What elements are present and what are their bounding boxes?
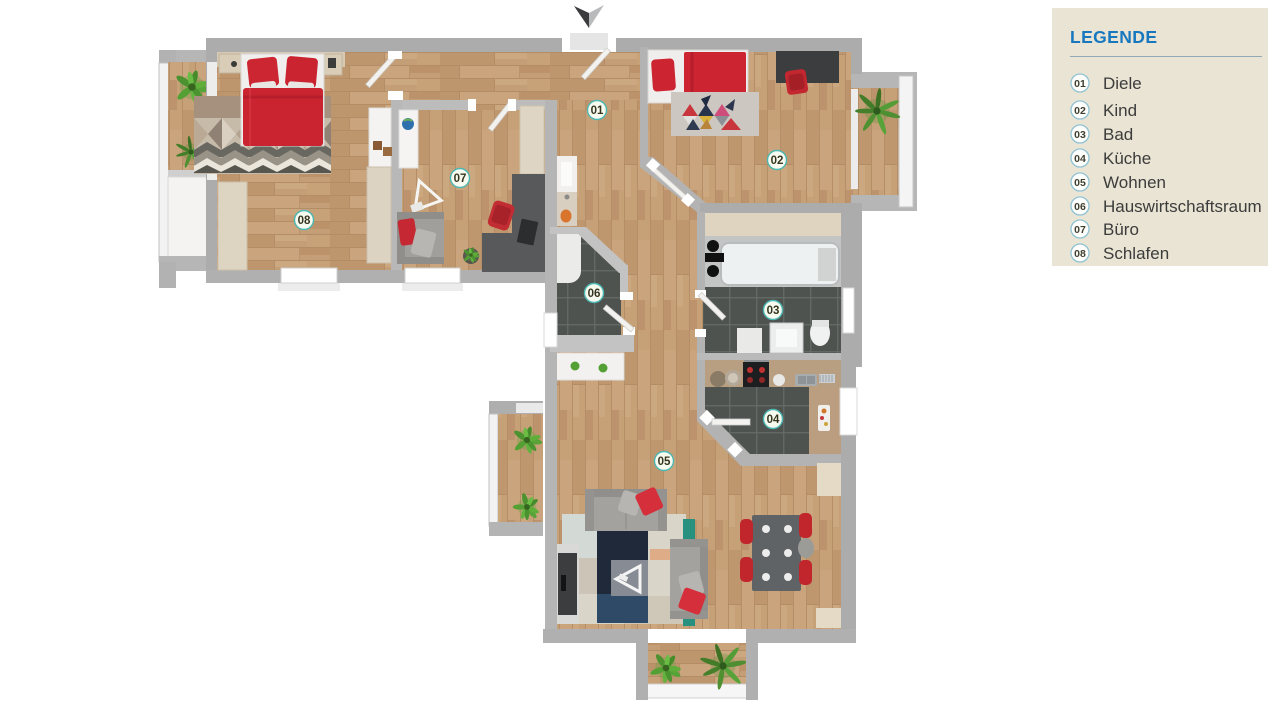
svg-text:Schlafen: Schlafen — [1103, 244, 1169, 263]
svg-text:04: 04 — [767, 414, 780, 426]
svg-text:02: 02 — [771, 155, 784, 167]
svg-text:02: 02 — [1074, 105, 1086, 117]
svg-text:Küche: Küche — [1103, 149, 1151, 168]
svg-text:05: 05 — [1074, 177, 1086, 189]
svg-text:03: 03 — [1074, 129, 1086, 141]
svg-text:Büro: Büro — [1103, 220, 1139, 239]
svg-text:LEGENDE: LEGENDE — [1070, 27, 1157, 47]
svg-text:06: 06 — [1074, 201, 1086, 213]
svg-text:03: 03 — [767, 305, 780, 317]
svg-text:07: 07 — [1074, 224, 1086, 236]
svg-text:Wohnen: Wohnen — [1103, 173, 1166, 192]
svg-text:Diele: Diele — [1103, 74, 1142, 93]
svg-text:04: 04 — [1074, 153, 1086, 165]
svg-text:Hauswirtschaftsraum: Hauswirtschaftsraum — [1103, 197, 1262, 216]
svg-text:Bad: Bad — [1103, 125, 1133, 144]
svg-text:05: 05 — [658, 456, 671, 468]
svg-text:Kind: Kind — [1103, 101, 1137, 120]
svg-text:08: 08 — [1074, 248, 1086, 260]
svg-text:06: 06 — [588, 288, 601, 300]
svg-text:08: 08 — [298, 215, 311, 227]
svg-text:01: 01 — [1074, 78, 1086, 90]
svg-text:01: 01 — [591, 105, 604, 117]
svg-text:07: 07 — [454, 173, 467, 185]
